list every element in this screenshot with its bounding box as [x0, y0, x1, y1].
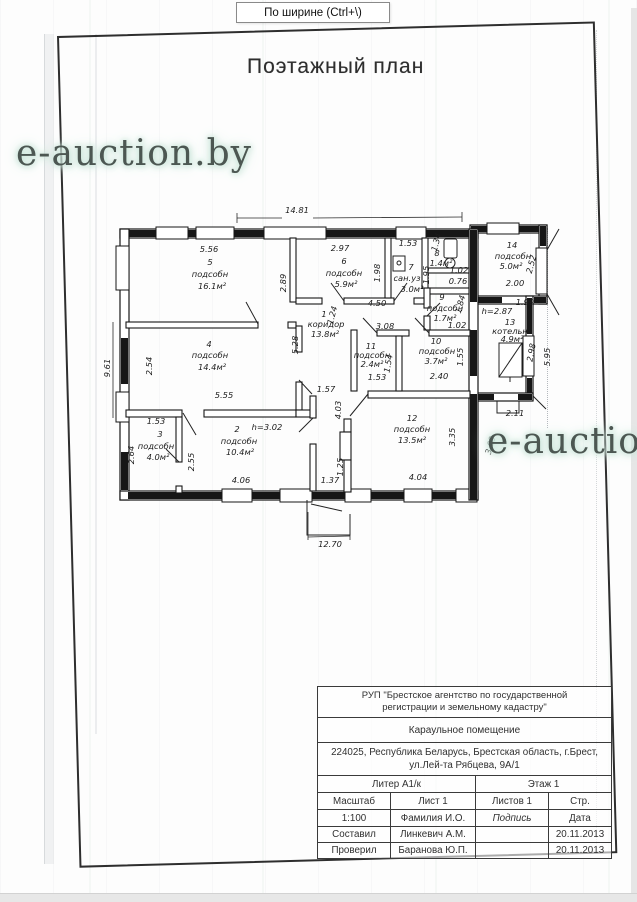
- room-8-number: 8: [434, 248, 439, 258]
- org-line2: регистрации и земельному кадастру": [382, 702, 547, 714]
- title-block-address: 224025, Республика Беларусь, Брестская о…: [318, 742, 611, 775]
- room-10-name: подсобн: [419, 346, 456, 356]
- scale-value-cell: 1:100: [318, 810, 391, 826]
- sink-icon: [397, 261, 401, 265]
- plan-dimension-label: 1.53: [399, 238, 417, 248]
- compiled-sign-cell: [476, 827, 549, 842]
- room-11-area: 2.4м²: [361, 359, 384, 369]
- room-3-number: 3: [157, 429, 162, 439]
- plan-dimension-label: 14.81: [285, 205, 309, 215]
- plan-dimension-label: 2.89: [278, 274, 288, 292]
- room-13-area: 4.9м²: [501, 334, 524, 344]
- sheets-cell: Листов 1: [476, 793, 549, 809]
- checked-name-cell: Баранова Ю.П.: [391, 843, 476, 858]
- room-4-name: подсобн: [192, 350, 229, 360]
- title-block-checked-row: Проверил Баранова Ю.П. 20.11.2013: [318, 842, 611, 858]
- room-12-number: 12: [407, 413, 418, 423]
- room-12-area: 13.5м²: [398, 435, 427, 445]
- name-header-cell: Фамилия И.О.: [391, 810, 476, 826]
- plan-dimension-label: 1.53: [368, 372, 386, 382]
- checked-sign-cell: [476, 843, 549, 858]
- plan-dimension-label: 2.97: [331, 243, 350, 253]
- room-4-area: 14.4м²: [198, 362, 227, 372]
- checked-date-cell: 20.11.2013: [549, 843, 611, 858]
- plan-dimension-label: 5.55: [215, 390, 233, 400]
- plan-dimension-label: 1.02: [450, 265, 468, 275]
- title-block-compiled-row: Составил Линкевич А.М. 20.11.2013: [318, 826, 611, 842]
- room-7-name: сан.уз: [393, 273, 421, 283]
- room-4-number: 4: [206, 339, 211, 349]
- plan-dimension-label: h=3.02: [252, 422, 283, 432]
- viewer-fit-width-tooltip: По ширине (Ctrl+\): [236, 2, 390, 23]
- plan-dimension-label: 2.98: [525, 343, 538, 363]
- room-7-area: 3.0м²: [401, 284, 424, 294]
- plan-dimension-label: 1.55: [455, 348, 465, 366]
- plan-dimension-label: 1.37: [321, 475, 340, 485]
- plan-dimension-label: 4.04: [409, 472, 427, 482]
- plan-dimension-label: 2.11: [506, 408, 524, 418]
- plan-dimension-label: 2.40: [430, 371, 448, 381]
- checked-role-cell: Проверил: [318, 843, 391, 858]
- plan-dimension-label: 1.54: [382, 354, 395, 374]
- plan-dimension-label: 2.00: [506, 278, 524, 288]
- title-block-headers-row: Масштаб Лист 1 Листов 1 Стр.: [318, 792, 611, 809]
- date-header-cell: Дата: [549, 810, 611, 826]
- room-2-number: 2: [234, 424, 239, 434]
- room-12-name: подсобн: [394, 424, 431, 434]
- room-14-area: 5.0м²: [500, 261, 523, 271]
- plan-dimension-label: 1.99: [516, 297, 534, 307]
- plan-dimension-label: 1.95: [421, 266, 431, 284]
- room-5-area: 16.1м²: [198, 281, 227, 291]
- tooltip-text: По ширине (Ctrl+\): [264, 7, 362, 19]
- room-9-number: 9: [439, 292, 444, 302]
- room-3-area: 4.0м²: [147, 452, 170, 462]
- title-block-org: РУП "Брестское агентство по государствен…: [318, 687, 611, 717]
- room-1-area: 13.8м²: [311, 329, 340, 339]
- sheet-cell: Лист 1: [391, 793, 476, 809]
- watermark-e-auction: e-auction.by: [16, 133, 252, 174]
- plan-dimension-label: 1.84: [453, 294, 467, 314]
- room-6-area: 5.9м²: [335, 279, 358, 289]
- plan-dimension-label: 2.54: [144, 357, 154, 375]
- plan-dimension-label: 3.08: [376, 321, 394, 331]
- title-block: РУП "Брестское агентство по государствен…: [317, 686, 612, 859]
- toilet-icon: [444, 239, 457, 258]
- scale-label-cell: Масштаб: [318, 793, 391, 809]
- room-6-number: 6: [341, 256, 346, 266]
- room-10-number: 10: [431, 336, 442, 346]
- room-5-name: подсобн: [192, 269, 229, 279]
- plan-dimension-label: 2.55: [186, 453, 196, 471]
- plan-dimension-label: 0.76: [449, 276, 467, 286]
- org-line1: РУП "Брестское агентство по государствен…: [362, 690, 568, 702]
- compiled-role-cell: Составил: [318, 827, 391, 842]
- compiled-name-cell: Линкевич А.М.: [391, 827, 476, 842]
- plan-dimension-label: 5.28: [290, 336, 300, 354]
- room-7-number: 7: [408, 262, 414, 272]
- room-2-name: подсобн: [221, 436, 258, 446]
- floor-cell: Этаж 1: [476, 776, 611, 792]
- plan-dimension-label: 5.95: [542, 348, 552, 366]
- plan-dimension-label: 4.50: [368, 298, 386, 308]
- plan-dimension-label: 4.06: [232, 475, 250, 485]
- plan-dimension-label: 5.56: [200, 244, 218, 254]
- address-line2: ул.Лей-та Рябцева, 9А/1: [409, 759, 520, 772]
- address-line1: 224025, Республика Беларусь, Брестская о…: [331, 746, 598, 759]
- liter-cell: Литер А1/к: [318, 776, 476, 792]
- compiled-date-cell: 20.11.2013: [549, 827, 611, 842]
- room-10-area: 3.7м²: [425, 356, 448, 366]
- title-block-object: Караульное помещение: [318, 717, 611, 742]
- plan-dimension-label: 1.02: [448, 320, 466, 330]
- plan-dimension-label: 2.64: [126, 446, 136, 464]
- plan-dimension-label: 3.35: [447, 428, 457, 446]
- title-block-liter-row: Литер А1/к Этаж 1: [318, 775, 611, 792]
- watermark-e-auction: e-auction.by: [487, 421, 637, 462]
- title-block-subheaders-row: 1:100 Фамилия И.О. Подпись Дата: [318, 809, 611, 826]
- room-14-number: 14: [507, 240, 518, 250]
- object-name: Караульное помещение: [409, 725, 520, 736]
- sign-header-cell: Подпись: [476, 810, 549, 826]
- room-6-name: подсобн: [326, 268, 363, 278]
- room-5-number: 5: [207, 257, 212, 267]
- page-label-cell: Стр.: [549, 793, 611, 809]
- screenshot-root: { "viewer": { "tooltip": "По ширине (Ctr…: [0, 0, 637, 901]
- plan-dimension-label: 1.98: [372, 264, 382, 282]
- plan-dimension-label: 1.57: [317, 384, 336, 394]
- plan-dimension-label: 1.25: [335, 458, 345, 476]
- plan-dimension-label: 1.53: [147, 416, 165, 426]
- plan-dimension-label: h=2.87: [482, 306, 513, 316]
- room-2-area: 10.4м²: [226, 447, 255, 457]
- plan-dimension-label: 12.70: [318, 539, 342, 549]
- plan-dimension-label: 9.61: [102, 359, 112, 377]
- plan-dimension-label: 4.03: [333, 401, 343, 419]
- room-3-name: подсобн: [138, 441, 175, 451]
